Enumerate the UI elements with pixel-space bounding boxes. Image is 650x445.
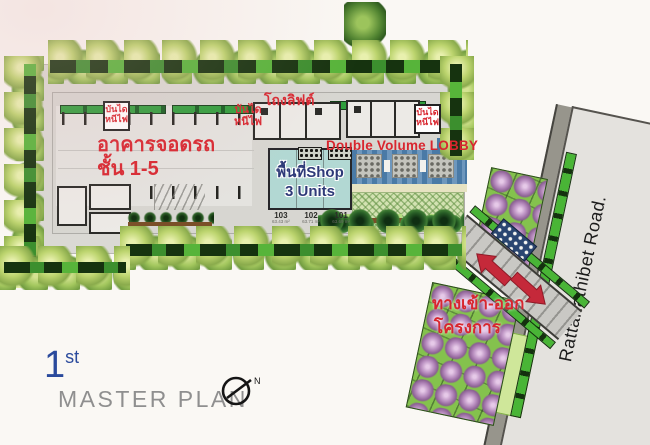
side-table bbox=[384, 160, 390, 172]
lobby-label: Double Volume LOBBY bbox=[326, 138, 478, 153]
fire-escape-label: บันได bbox=[416, 107, 438, 117]
fire-escape-text: บันได หนีไฟ bbox=[234, 104, 262, 129]
shop-line2: 3 Units bbox=[268, 183, 352, 202]
shop-line1: พื้นที่Shop bbox=[268, 164, 352, 183]
interior-wall bbox=[394, 102, 396, 136]
floor-suffix: st bbox=[65, 347, 79, 367]
north-arrow-icon: N bbox=[218, 372, 268, 414]
entrance-label-line1: ทางเข้า-ออก bbox=[432, 290, 524, 317]
unit-area: 63.43 m² bbox=[272, 220, 290, 225]
side-table bbox=[420, 160, 426, 172]
walkway-strip bbox=[352, 184, 467, 192]
fire-escape-label: หนีไฟ bbox=[416, 117, 439, 127]
master-plan-canvas: Rattanathibet Road. bbox=[0, 0, 650, 445]
parking-ramp bbox=[154, 184, 205, 210]
shop-area-label: พื้นที่Shop 3 Units bbox=[268, 164, 352, 202]
lobby-back-rooms bbox=[346, 100, 420, 138]
lounge-seating bbox=[356, 154, 382, 178]
fixture bbox=[315, 108, 322, 115]
fire-escape-label: บันได bbox=[105, 104, 127, 114]
fire-escape-box: บันได หนีไฟ bbox=[414, 104, 441, 134]
service-room bbox=[89, 184, 131, 210]
unit-102: 102 63.71 m² bbox=[302, 212, 320, 225]
north-letter: N bbox=[254, 376, 261, 386]
unit-103: 103 63.43 m² bbox=[272, 212, 290, 225]
parking-floors-label: ชั้น 1-5 bbox=[97, 152, 159, 184]
service-room bbox=[57, 186, 87, 226]
interior-wall bbox=[370, 102, 372, 136]
parking-stalls-row bbox=[62, 112, 252, 125]
unit-area: 63.69 m² bbox=[332, 220, 350, 225]
unit-number-row: 103 63.43 m² 102 63.71 m² 101 63.69 m² bbox=[272, 212, 350, 225]
floor-number: 1 bbox=[44, 344, 65, 386]
entrance-label-line2: โครงการ bbox=[434, 314, 501, 341]
hedge-bottom-left bbox=[4, 262, 126, 273]
fire-escape-label: หนีไฟ bbox=[105, 114, 128, 124]
arrow-in-icon bbox=[469, 246, 515, 290]
unit-area: 63.71 m² bbox=[302, 220, 320, 225]
furniture-cluster bbox=[298, 147, 322, 160]
hedge-top bbox=[50, 60, 464, 73]
lounge-seating bbox=[392, 154, 418, 178]
fire-escape-label: บันได bbox=[234, 104, 261, 116]
unit-101: 101 63.69 m² bbox=[332, 212, 350, 225]
fire-escape-label: หนีไฟ bbox=[234, 116, 262, 128]
elevator-hall-label: โถงลิฟต์ bbox=[264, 90, 314, 112]
fixture bbox=[354, 106, 361, 113]
hedge-bottom bbox=[126, 244, 462, 256]
fire-escape-box: บันได หนีไฟ bbox=[103, 101, 130, 131]
